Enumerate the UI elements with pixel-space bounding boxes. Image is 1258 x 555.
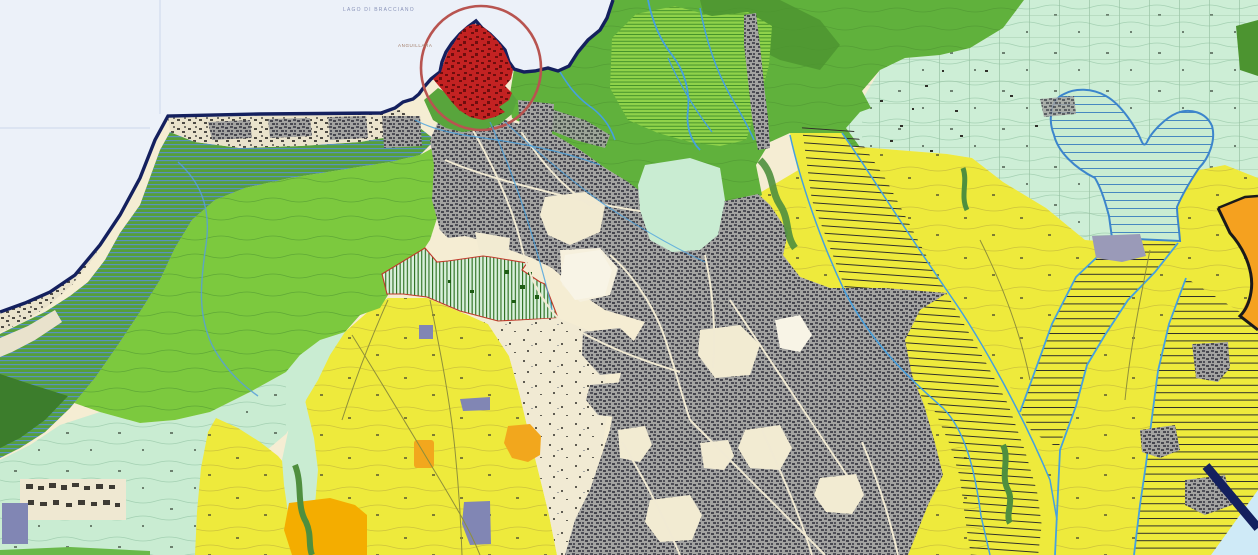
svg-text:LAGO DI BRACCIANO: LAGO DI BRACCIANO [343, 7, 415, 13]
svg-text:ANGUILLARA: ANGUILLARA [398, 43, 433, 48]
